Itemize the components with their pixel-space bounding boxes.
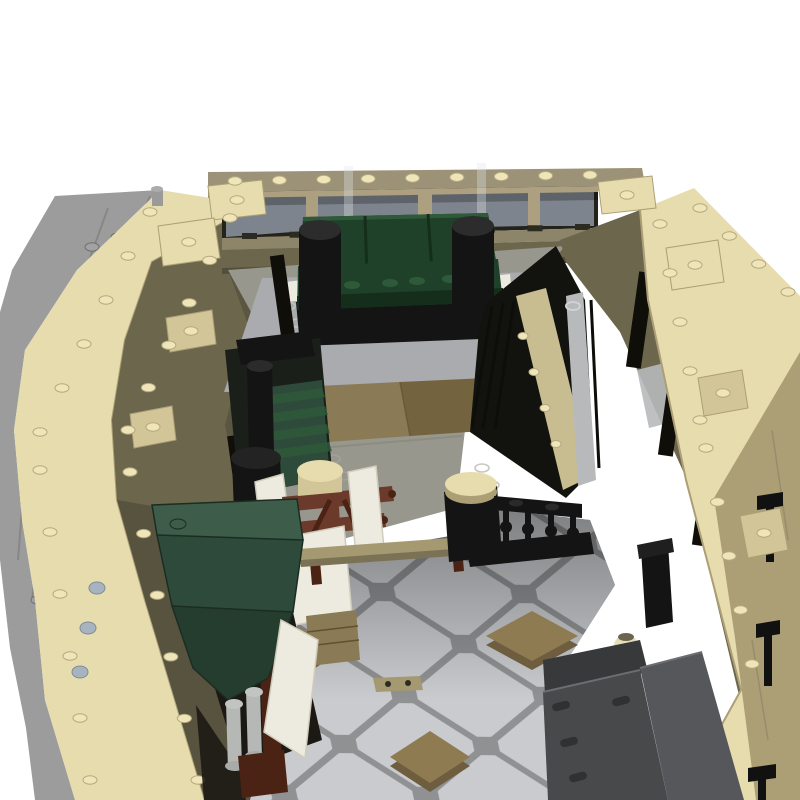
baluster-bulge [545, 525, 557, 537]
stud [162, 341, 176, 349]
stud [230, 196, 244, 204]
baluster-bulge [567, 527, 579, 539]
pot-rim [231, 447, 281, 469]
sofa [285, 213, 512, 346]
stud [699, 444, 713, 452]
stud [137, 529, 151, 537]
stud [317, 175, 331, 183]
seat-stud [409, 277, 425, 285]
stud [223, 214, 237, 222]
stud [177, 714, 191, 722]
stud [673, 318, 687, 326]
stud [693, 204, 707, 212]
stud [539, 172, 553, 180]
stud [781, 288, 795, 296]
stud [745, 660, 759, 668]
stud [99, 296, 113, 304]
stove-pipe [247, 363, 274, 457]
vent-dash [242, 233, 257, 239]
sofa-armrest [299, 230, 341, 318]
cushion-top [445, 472, 497, 496]
stud [63, 652, 77, 660]
stud [583, 171, 597, 179]
stud [43, 528, 57, 536]
vent-dash [575, 224, 590, 230]
lamp-post [758, 778, 766, 800]
armrest-top [452, 216, 494, 236]
stud [711, 498, 725, 506]
stud [663, 269, 677, 277]
stud [143, 208, 157, 216]
pipe-stud [72, 666, 88, 678]
column-cap [245, 687, 263, 697]
stud [361, 175, 375, 183]
stud [141, 383, 155, 391]
stud [182, 238, 196, 246]
stud [73, 714, 87, 722]
lamp-post [764, 634, 772, 686]
hat-box-top [297, 460, 343, 482]
stud [450, 173, 464, 181]
antenna-cap [151, 186, 163, 192]
column-cap [225, 699, 243, 709]
rack-knob [388, 490, 396, 498]
armrest-top [299, 220, 341, 240]
stud [551, 441, 561, 448]
stud [150, 591, 164, 599]
small-tan-plate [373, 676, 423, 692]
plate-hole [385, 681, 391, 687]
stud [653, 220, 667, 228]
antenna [152, 190, 163, 206]
stud [53, 590, 67, 598]
stud [146, 423, 160, 431]
seat-stud [382, 279, 398, 287]
stud [33, 466, 47, 474]
stud [33, 428, 47, 436]
railing-stud [545, 504, 559, 511]
stud [121, 252, 135, 260]
stud [85, 243, 99, 251]
stud [716, 389, 730, 397]
awning-stud [170, 519, 186, 529]
stud [722, 552, 736, 560]
stud [722, 232, 736, 240]
stud [540, 405, 550, 412]
stud [757, 529, 771, 537]
stud [83, 776, 97, 784]
stud [123, 468, 137, 476]
vent-dash [527, 225, 542, 231]
product-photo: LEGO MOC modular building lobby - aerial… [0, 0, 800, 800]
pipe-stud [80, 622, 96, 634]
vase-mouth [618, 633, 634, 641]
stud [734, 606, 748, 614]
stud [518, 333, 528, 340]
baluster-bulge [522, 523, 534, 535]
stud [693, 416, 707, 424]
pipe-stud [89, 582, 105, 594]
baluster-bulge [500, 521, 512, 533]
lego-building-render: LEGO MOC modular building lobby - aerial… [0, 0, 800, 800]
sofa-armrest [452, 226, 494, 312]
stud [752, 260, 766, 268]
stud [203, 256, 217, 264]
stud [688, 261, 702, 269]
stud [121, 426, 135, 434]
stud [164, 653, 178, 661]
seat-stud [344, 281, 360, 289]
column-pedestal [238, 750, 288, 798]
stud [272, 176, 286, 184]
wood-plank [318, 382, 410, 442]
stud [494, 172, 508, 180]
stud [77, 340, 91, 348]
stud [228, 177, 242, 185]
stud [55, 384, 69, 392]
stud [182, 299, 196, 307]
pipe-top [247, 360, 273, 372]
stud [529, 369, 539, 376]
railing-stud [509, 500, 523, 507]
stud [406, 174, 420, 182]
plate-hole [405, 680, 411, 686]
column [246, 688, 262, 760]
stud [184, 327, 198, 335]
stud [620, 191, 634, 199]
stud [683, 367, 697, 375]
